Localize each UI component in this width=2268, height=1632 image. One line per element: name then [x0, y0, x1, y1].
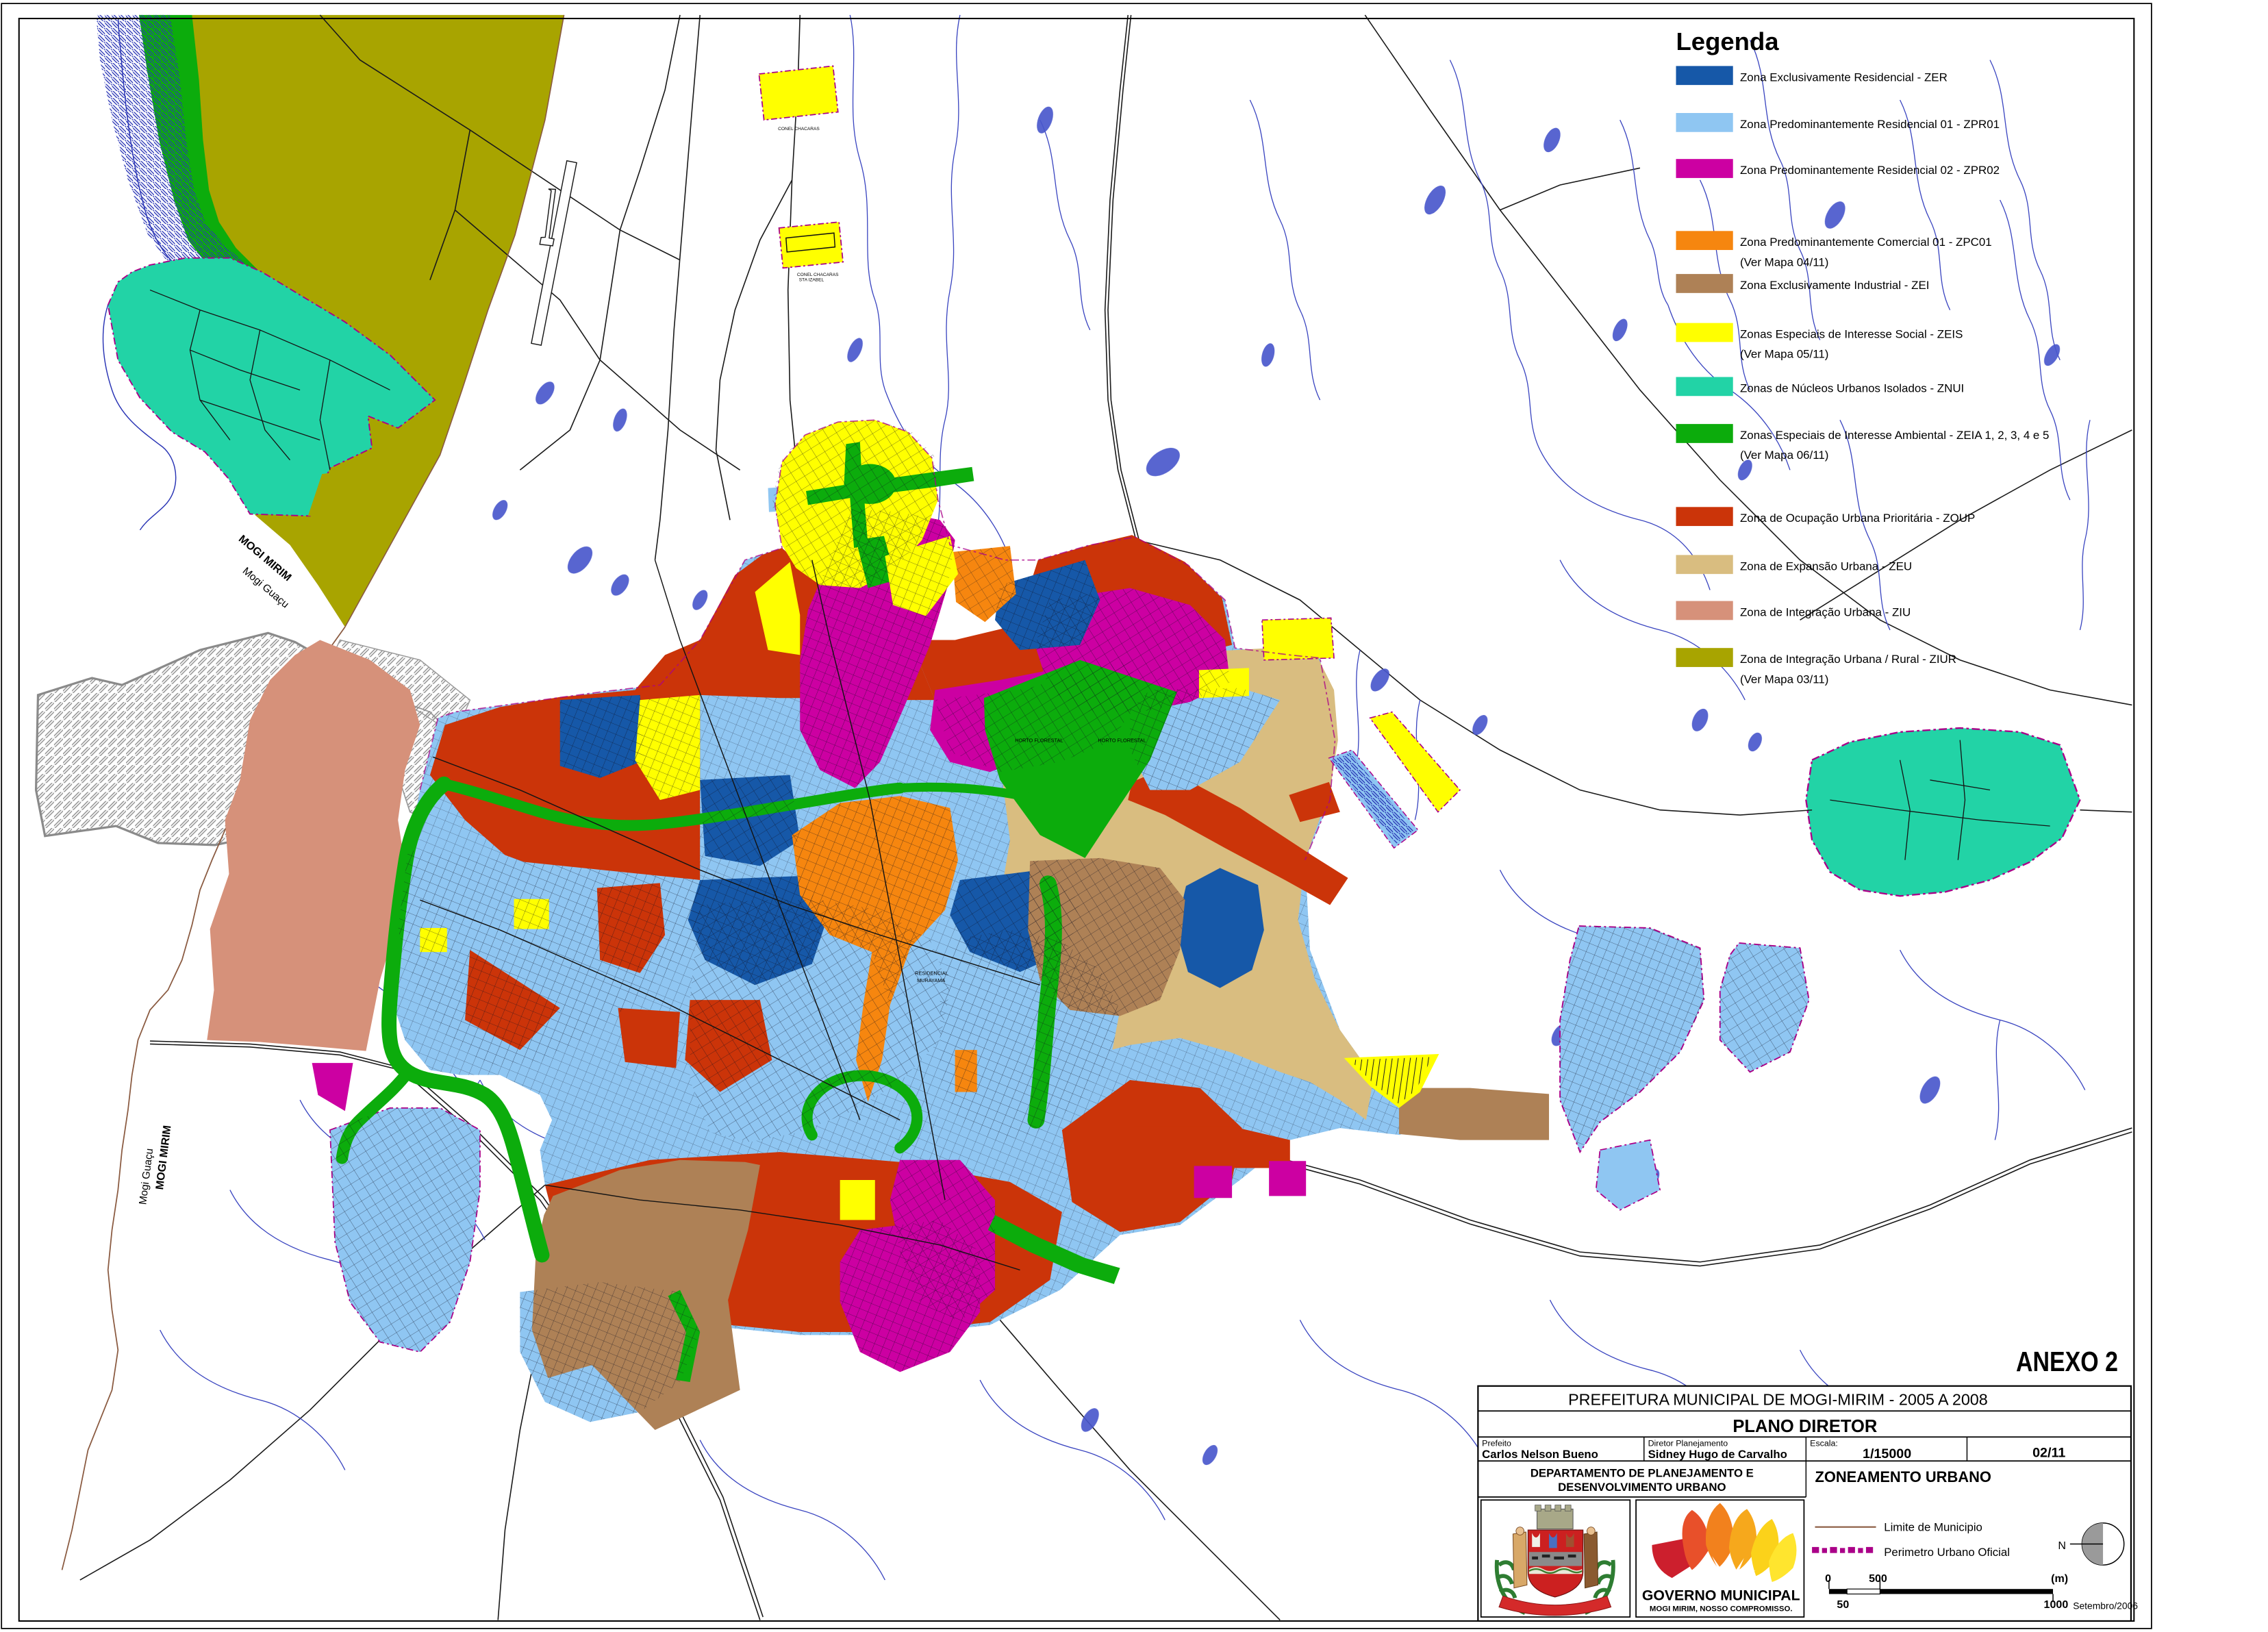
svg-text:CONEL CHACARAS: CONEL CHACARAS: [778, 127, 820, 131]
svg-text:Zona Predominantemente Comerci: Zona Predominantemente Comercial 01 - ZP…: [1740, 236, 1992, 249]
svg-text:1000: 1000: [2044, 1598, 2069, 1611]
svg-text:PREFEITURA MUNICIPAL DE MOGI-M: PREFEITURA MUNICIPAL DE MOGI-MIRIM - 200…: [1568, 1391, 1988, 1409]
svg-text:DESENVOLVIMENTO URBANO: DESENVOLVIMENTO URBANO: [1558, 1481, 1726, 1494]
svg-text:Carlos Nelson Bueno: Carlos Nelson Bueno: [1482, 1448, 1598, 1461]
svg-text:MOGI MIRIM, NOSSO COMPROMISSO.: MOGI MIRIM, NOSSO COMPROMISSO.: [1650, 1605, 1793, 1613]
svg-text:STA IZABEL: STA IZABEL: [799, 277, 824, 282]
svg-text:DEPARTAMENTO DE PLANEJAMENTO E: DEPARTAMENTO DE PLANEJAMENTO E: [1530, 1467, 1754, 1480]
svg-text:Zona de Ocupação Urbana Priori: Zona de Ocupação Urbana Prioritária - ZO…: [1740, 512, 1975, 525]
svg-text:500: 500: [1869, 1572, 1887, 1585]
svg-text:Zona Predominantemente Residen: Zona Predominantemente Residencial 01 - …: [1740, 118, 2000, 131]
svg-text:Perimetro Urbano Oficial: Perimetro Urbano Oficial: [1884, 1546, 2010, 1559]
svg-text:CONEL CHACARAS: CONEL CHACARAS: [797, 273, 839, 277]
svg-text:(Ver Mapa 06/11): (Ver Mapa 06/11): [1740, 449, 1829, 462]
svg-text:0: 0: [1825, 1572, 1831, 1585]
svg-text:(m): (m): [2051, 1572, 2068, 1585]
svg-text:Limite de Municipio: Limite de Municipio: [1884, 1521, 1982, 1534]
svg-text:1/15000: 1/15000: [1863, 1446, 1911, 1461]
svg-text:Escala:: Escala:: [1810, 1438, 1838, 1448]
svg-text:(Ver Mapa 03/11): (Ver Mapa 03/11): [1740, 673, 1829, 686]
svg-text:Setembro/2006: Setembro/2006: [2073, 1600, 2138, 1611]
svg-text:Zona Predominantemente Residen: Zona Predominantemente Residencial 02 - …: [1740, 164, 2000, 177]
svg-text:Diretor Planejamento: Diretor Planejamento: [1648, 1438, 1728, 1448]
svg-text:N: N: [2058, 1540, 2066, 1552]
svg-text:02/11: 02/11: [2032, 1445, 2065, 1460]
svg-text:Zona de Integração Urbana - ZI: Zona de Integração Urbana - ZIU: [1740, 605, 1911, 618]
svg-text:Zonas Especiais de Interesse S: Zonas Especiais de Interesse Social - ZE…: [1740, 328, 1963, 341]
svg-text:Sidney Hugo de Carvalho: Sidney Hugo de Carvalho: [1648, 1448, 1787, 1461]
svg-text:Zonas Especiais de Interesse A: Zonas Especiais de Interesse Ambiental -…: [1740, 429, 2050, 442]
svg-text:50: 50: [1837, 1598, 1849, 1611]
svg-text:Legenda: Legenda: [1676, 27, 1779, 55]
svg-text:Zona Exclusivamente Residencia: Zona Exclusivamente Residencial - ZER: [1740, 71, 1948, 84]
svg-text:Zona de Expansão Urbana - ZEU: Zona de Expansão Urbana - ZEU: [1740, 560, 1912, 573]
svg-text:GOVERNO MUNICIPAL: GOVERNO MUNICIPAL: [1642, 1587, 1800, 1603]
svg-text:ANEXO 2: ANEXO 2: [2016, 1346, 2118, 1377]
svg-text:ZONEAMENTO URBANO: ZONEAMENTO URBANO: [1815, 1468, 1991, 1485]
svg-text:Zonas de Núcleos Urbanos Isola: Zonas de Núcleos Urbanos Isolados - ZNUI: [1740, 381, 1964, 394]
svg-text:Prefeito: Prefeito: [1482, 1438, 1511, 1448]
svg-text:(Ver Mapa 05/11): (Ver Mapa 05/11): [1740, 348, 1829, 361]
svg-text:(Ver Mapa 04/11): (Ver Mapa 04/11): [1740, 255, 1829, 268]
svg-text:Zona Exclusivamente Industrial: Zona Exclusivamente Industrial - ZEI: [1740, 279, 1930, 292]
svg-text:Zona de Integração Urbana / Ru: Zona de Integração Urbana / Rural - ZIUR: [1740, 653, 1956, 666]
svg-text:PLANO DIRETOR: PLANO DIRETOR: [1732, 1417, 1877, 1436]
